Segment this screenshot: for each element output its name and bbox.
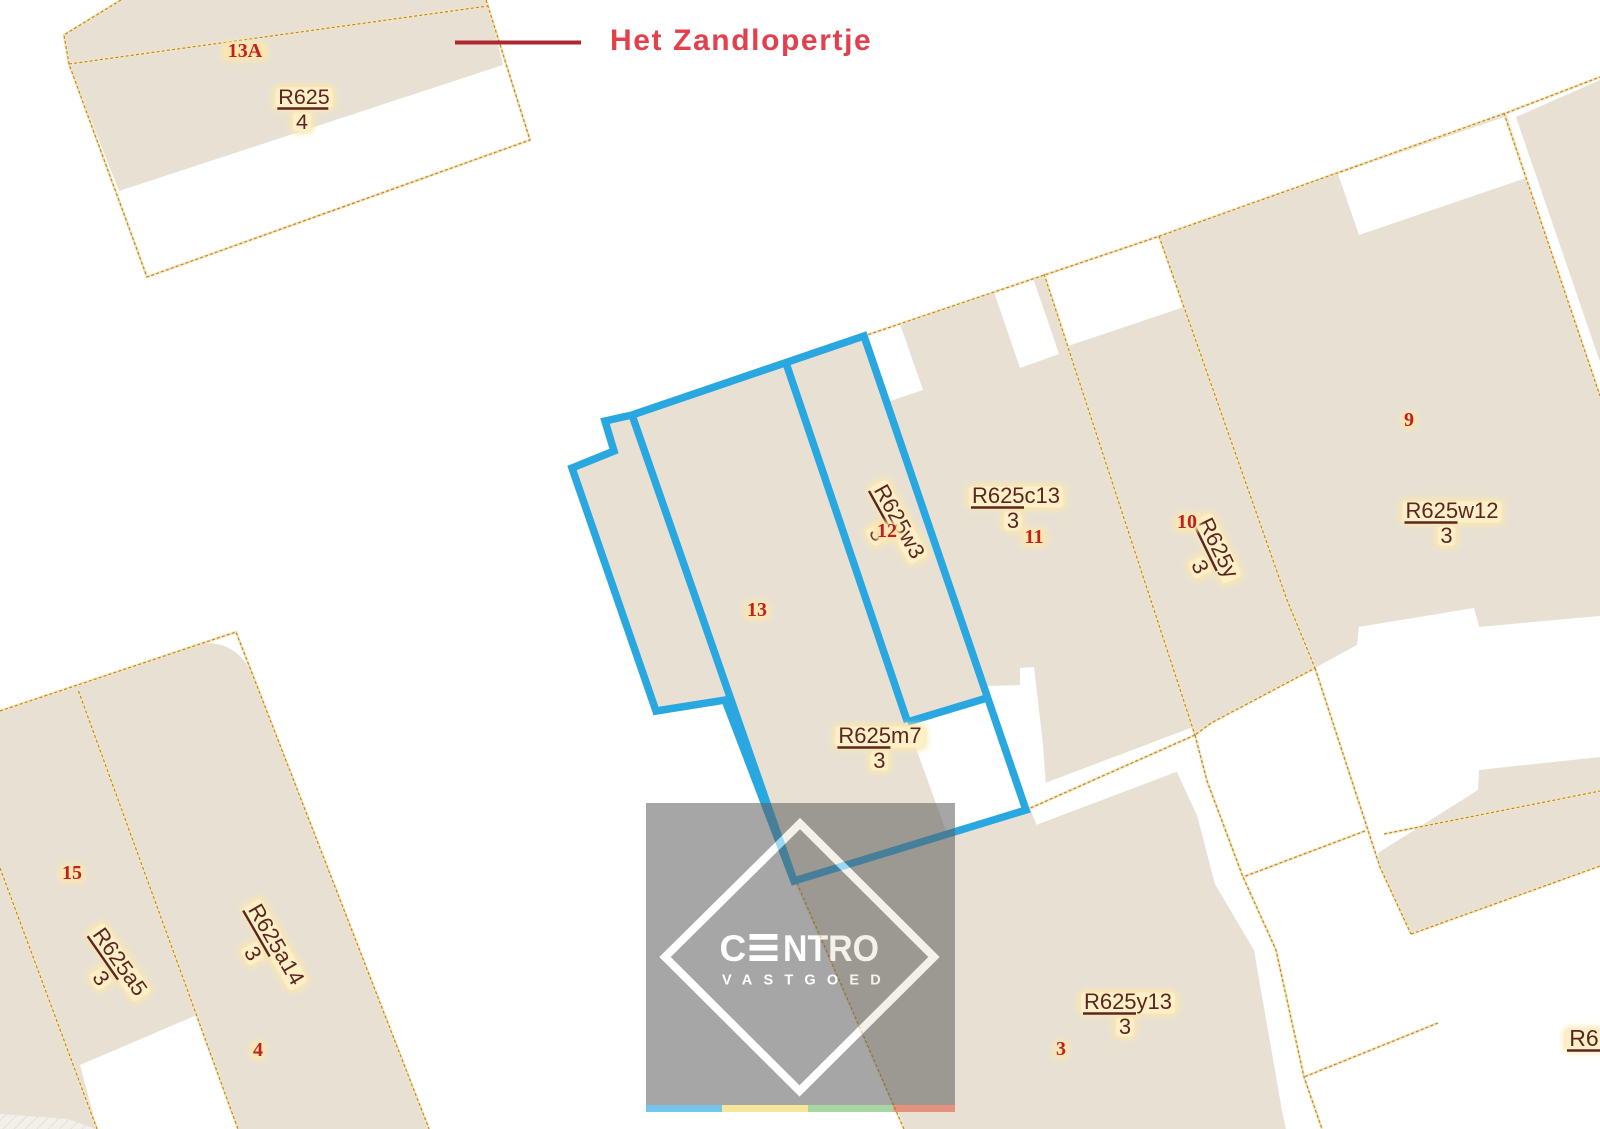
svg-text:11: 11 — [1025, 526, 1044, 548]
svg-text:3: 3 — [873, 748, 885, 773]
svg-text:4: 4 — [253, 1039, 263, 1061]
svg-text:13A: 13A — [228, 40, 263, 62]
svg-text:VASTGOED: VASTGOED — [722, 973, 892, 989]
svg-text:3: 3 — [1007, 508, 1019, 533]
svg-text:15: 15 — [62, 862, 82, 884]
svg-text:Het Zandlopertje: Het Zandlopertje — [610, 24, 872, 57]
svg-text:R625m7: R625m7 — [838, 723, 921, 748]
svg-text:3: 3 — [1056, 1038, 1066, 1060]
svg-text:C: C — [720, 928, 747, 969]
svg-text:13: 13 — [747, 599, 767, 621]
svg-text:12: 12 — [877, 520, 897, 542]
svg-text:9: 9 — [1404, 409, 1414, 431]
svg-text:4: 4 — [296, 110, 308, 134]
svg-text:3: 3 — [1119, 1014, 1131, 1039]
svg-text:R625w12: R625w12 — [1406, 498, 1499, 523]
svg-text:3: 3 — [1440, 523, 1452, 548]
svg-text:R625c13: R625c13 — [972, 483, 1060, 508]
svg-text:R625y13: R625y13 — [1084, 989, 1172, 1014]
svg-text:NTRO: NTRO — [783, 928, 879, 969]
svg-text:R625: R625 — [278, 85, 329, 109]
svg-text:10: 10 — [1177, 511, 1197, 533]
svg-text:R6: R6 — [1569, 1025, 1598, 1051]
